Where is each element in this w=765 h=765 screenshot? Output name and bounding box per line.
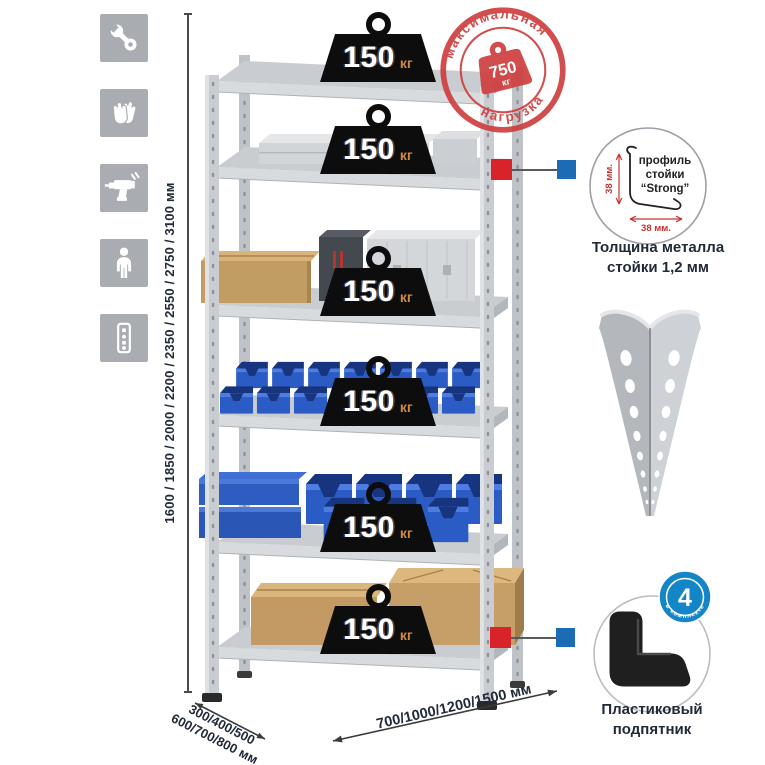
weight-icon: 150 кг — [320, 606, 436, 654]
weight-icon: 150 кг — [320, 126, 436, 174]
max-load-stamp: максимальная нагрузка 750 кг — [436, 3, 570, 137]
feature-drill — [100, 164, 148, 212]
shelf-load-5: 150 кг — [320, 482, 436, 552]
callout-red-marker-bottom — [490, 627, 511, 648]
weight-icon: 150 кг — [320, 504, 436, 552]
height-dimension-line — [187, 14, 189, 692]
post-profile-detail: 38 мм. 38 мм. профиль стойки “Strong” — [586, 124, 710, 248]
weight-icon: 150 кг — [320, 34, 436, 82]
shelf-load-3: 150 кг — [320, 246, 436, 316]
callout-blue-marker-bottom — [556, 628, 575, 647]
gloves-icon — [104, 93, 144, 133]
load-unit: кг — [400, 55, 413, 71]
shelf-load-2: 150 кг — [320, 104, 436, 174]
page: 1600 / 1850 / 2000 / 2200 / 2350 / 2550 … — [0, 0, 765, 765]
feature-wrench — [100, 14, 148, 62]
wrench-icon — [104, 18, 144, 58]
feature-person — [100, 239, 148, 287]
kit-count-badge: 4 в комплекте — [657, 569, 713, 625]
shelf-load-1: 150 кг — [320, 12, 436, 82]
svg-text:профиль: профиль — [639, 155, 692, 167]
weight-handle-icon — [366, 12, 391, 37]
weight-handle-icon — [366, 584, 391, 609]
weight-handle-icon — [366, 246, 391, 271]
height-dimension-label: 1600 / 1850 / 2000 / 2200 / 2350 / 2550 … — [162, 53, 180, 653]
profile-label: профиль стойки “Strong” — [639, 155, 692, 195]
weight-handle-icon — [366, 356, 391, 381]
height-dim-cap-bottom — [184, 691, 192, 693]
weight-handle-icon — [366, 104, 391, 129]
load-value: 150 — [343, 41, 395, 75]
drill-icon — [104, 168, 144, 208]
weight-icon: 150 кг — [320, 268, 436, 316]
profile-dim-vertical: 38 мм. — [604, 164, 615, 194]
shelf-load-4: 150 кг — [320, 356, 436, 426]
callout-blue-marker-top — [557, 160, 576, 179]
svg-text:стойки: стойки — [646, 169, 685, 181]
foot-caption: Пластиковый подпятник — [567, 700, 737, 739]
weight-handle-icon — [366, 482, 391, 507]
rack-post-icon — [104, 318, 144, 358]
corner-post-illustration — [584, 298, 716, 530]
profile-dim-horizontal: 38 мм. — [641, 223, 671, 234]
feature-gloves — [100, 89, 148, 137]
callout-red-marker-top — [491, 159, 512, 180]
feature-rack-post — [100, 314, 148, 362]
person-icon — [104, 243, 144, 283]
shelf-load-6: 150 кг — [320, 584, 436, 654]
weight-icon: 150 кг — [320, 378, 436, 426]
profile-caption: Толщина металла стойки 1,2 мм — [573, 238, 743, 277]
svg-text:“Strong”: “Strong” — [641, 183, 690, 195]
height-dim-cap-top — [184, 13, 192, 15]
badge-value: 4 — [678, 584, 692, 612]
